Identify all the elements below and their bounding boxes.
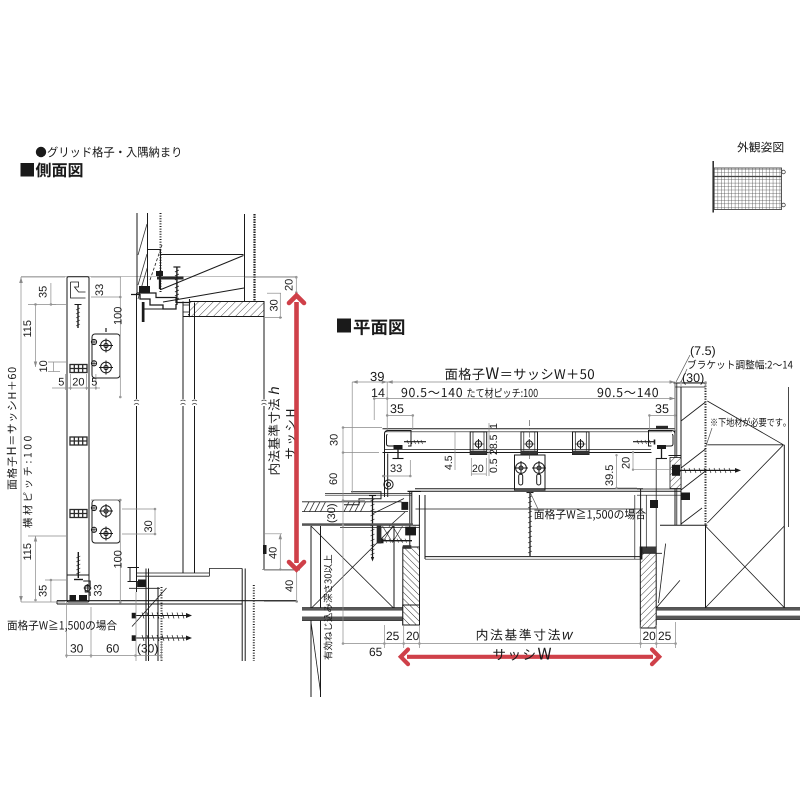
- svg-text:30: 30: [70, 642, 84, 656]
- svg-text:35: 35: [390, 402, 404, 416]
- svg-text:40: 40: [284, 580, 296, 592]
- svg-text:30: 30: [143, 520, 155, 532]
- svg-text:4.5: 4.5: [443, 455, 455, 470]
- svg-text:h: h: [267, 386, 283, 394]
- svg-text:39: 39: [370, 369, 384, 384]
- svg-text:25: 25: [386, 629, 400, 643]
- svg-text:65: 65: [369, 645, 383, 659]
- svg-text:28.5: 28.5: [488, 434, 500, 455]
- svg-text:5: 5: [91, 377, 97, 389]
- svg-text:5: 5: [58, 377, 64, 389]
- svg-text:60: 60: [106, 642, 120, 656]
- svg-text:35: 35: [655, 402, 669, 416]
- svg-text:33: 33: [94, 284, 106, 296]
- svg-text:20: 20: [406, 629, 420, 643]
- svg-text:14: 14: [371, 386, 385, 400]
- svg-text:20: 20: [643, 629, 657, 643]
- svg-text:w: w: [562, 628, 574, 644]
- svg-text:60: 60: [328, 473, 340, 485]
- svg-text:20: 20: [284, 279, 296, 291]
- svg-text:10: 10: [38, 360, 50, 372]
- svg-text:1: 1: [488, 423, 500, 429]
- svg-text:20: 20: [72, 377, 84, 389]
- svg-text:100: 100: [113, 550, 125, 568]
- svg-text:(7.5): (7.5): [690, 344, 716, 358]
- svg-text:40: 40: [268, 547, 280, 559]
- svg-text:33: 33: [390, 463, 402, 475]
- svg-text:100: 100: [113, 307, 125, 325]
- svg-text:35: 35: [38, 585, 50, 597]
- svg-text:25: 25: [658, 629, 672, 643]
- svg-text:(30): (30): [137, 642, 158, 656]
- svg-text:33: 33: [93, 584, 105, 596]
- svg-text:0.5: 0.5: [488, 458, 500, 473]
- svg-text:115: 115: [22, 320, 34, 338]
- svg-text:35: 35: [38, 286, 50, 298]
- svg-text:(30): (30): [682, 371, 704, 385]
- svg-text:(30): (30): [326, 503, 338, 523]
- svg-text:30: 30: [269, 299, 281, 311]
- svg-text:20: 20: [472, 463, 484, 475]
- svg-text:20: 20: [621, 457, 633, 469]
- svg-text:115: 115: [22, 543, 34, 561]
- svg-text:30: 30: [329, 434, 341, 446]
- svg-text:39.5: 39.5: [604, 465, 616, 486]
